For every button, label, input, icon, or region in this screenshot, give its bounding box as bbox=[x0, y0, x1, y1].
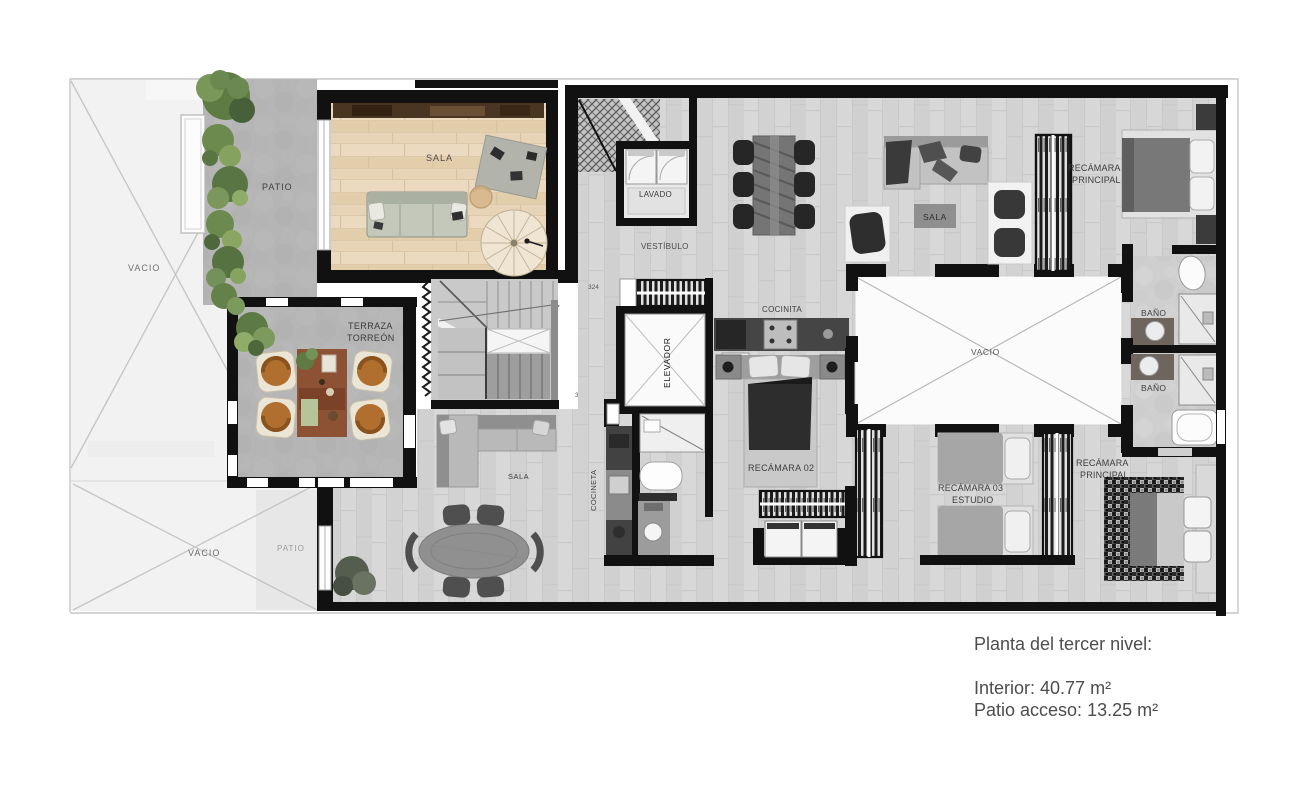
svg-text:VESTÍBULO: VESTÍBULO bbox=[641, 242, 689, 251]
svg-text:BAÑO: BAÑO bbox=[1141, 308, 1166, 318]
svg-text:VACIO: VACIO bbox=[188, 548, 220, 558]
svg-text:COCINETA: COCINETA bbox=[589, 470, 598, 511]
svg-text:ESTUDIO: ESTUDIO bbox=[952, 495, 993, 505]
svg-text:VACIO: VACIO bbox=[128, 263, 160, 273]
svg-text:324: 324 bbox=[588, 284, 599, 291]
svg-text:PRINCIPAL: PRINCIPAL bbox=[1072, 175, 1121, 185]
svg-text:ELEVADOR: ELEVADOR bbox=[662, 338, 672, 388]
svg-text:RECÁMARA: RECÁMARA bbox=[1076, 458, 1129, 468]
svg-text:PATIO: PATIO bbox=[262, 182, 293, 192]
svg-text:LAVADO: LAVADO bbox=[639, 190, 672, 199]
svg-text:Planta del tercer nivel:: Planta del tercer nivel: bbox=[974, 634, 1152, 654]
svg-text:PATIO: PATIO bbox=[277, 544, 305, 553]
svg-text:TERRAZA: TERRAZA bbox=[348, 321, 393, 331]
svg-text:SALA: SALA bbox=[426, 153, 453, 163]
svg-text:RECÁMARA 02: RECÁMARA 02 bbox=[748, 463, 814, 473]
svg-text:VACIO: VACIO bbox=[971, 347, 1000, 357]
svg-text:Patio acceso: 13.25 m²: Patio acceso: 13.25 m² bbox=[974, 700, 1158, 720]
svg-text:SALA: SALA bbox=[923, 212, 947, 222]
svg-text:TORREÓN: TORREÓN bbox=[347, 333, 395, 343]
svg-text:RECÁMARA 03: RECÁMARA 03 bbox=[938, 483, 1003, 493]
svg-text:RECÁMARA: RECÁMARA bbox=[1068, 163, 1121, 173]
svg-text:BAÑO: BAÑO bbox=[1141, 383, 1166, 393]
svg-text:Interior: 40.77 m²: Interior: 40.77 m² bbox=[974, 678, 1111, 698]
svg-text:SALA: SALA bbox=[508, 472, 529, 481]
svg-text:COCINITA: COCINITA bbox=[762, 305, 802, 314]
